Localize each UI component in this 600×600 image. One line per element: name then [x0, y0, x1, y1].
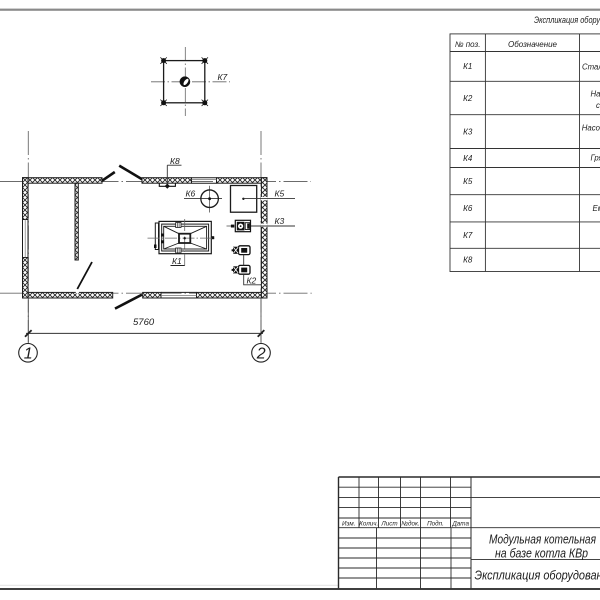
svg-text:Стальной водогрейный котел: Стальной водогрейный котел [582, 62, 600, 71]
svg-text:Насос подпиточный: Насос подпиточный [582, 123, 600, 132]
svg-text:К8: К8 [463, 256, 473, 265]
svg-text:К6: К6 [186, 189, 196, 199]
svg-text:на базе котла КВр: на базе котла КВр [495, 547, 588, 561]
svg-text:К1: К1 [172, 256, 182, 266]
svg-text:№док.: №док. [401, 520, 420, 528]
svg-text:Изм.: Изм. [342, 521, 355, 528]
svg-text:К3: К3 [275, 216, 285, 226]
svg-text:Лист: Лист [380, 521, 397, 528]
svg-text:Экспликация оборудования: Экспликация оборудования [534, 15, 600, 26]
svg-text:Экспликация оборудования: Экспликация оборудования [475, 569, 600, 583]
svg-text:Обозначение: Обозначение [508, 40, 558, 49]
svg-text:Колич.: Колич. [359, 521, 378, 528]
svg-text:Подп.: Подп. [427, 520, 444, 528]
svg-text:К2: К2 [463, 94, 473, 103]
svg-text:К4: К4 [463, 154, 473, 163]
svg-text:К5: К5 [463, 177, 473, 186]
svg-text:с эл.двигателем: с эл.двигателем [596, 101, 600, 110]
svg-text:Емкость запаса воды: Емкость запаса воды [593, 204, 600, 213]
svg-text:К8: К8 [170, 156, 180, 166]
svg-text:К1: К1 [463, 62, 472, 71]
svg-text:2: 2 [256, 346, 266, 363]
svg-text:Модульная котельная: Модульная котельная [489, 533, 596, 547]
svg-text:К7: К7 [463, 231, 473, 240]
svg-text:Насос сетевой центробежный: Насос сетевой центробежный [591, 90, 600, 99]
svg-text:К3: К3 [463, 127, 473, 136]
svg-text:Грязевик абонентский: Грязевик абонентский [591, 154, 600, 163]
svg-text:5760: 5760 [133, 317, 155, 328]
svg-text:№ поз.: № поз. [455, 40, 481, 49]
svg-text:К2: К2 [247, 276, 257, 286]
svg-text:1: 1 [24, 346, 33, 363]
svg-text:К6: К6 [463, 204, 473, 213]
svg-text:Дата: Дата [451, 521, 469, 528]
svg-text:К7: К7 [218, 72, 228, 82]
svg-text:К5: К5 [275, 189, 285, 199]
